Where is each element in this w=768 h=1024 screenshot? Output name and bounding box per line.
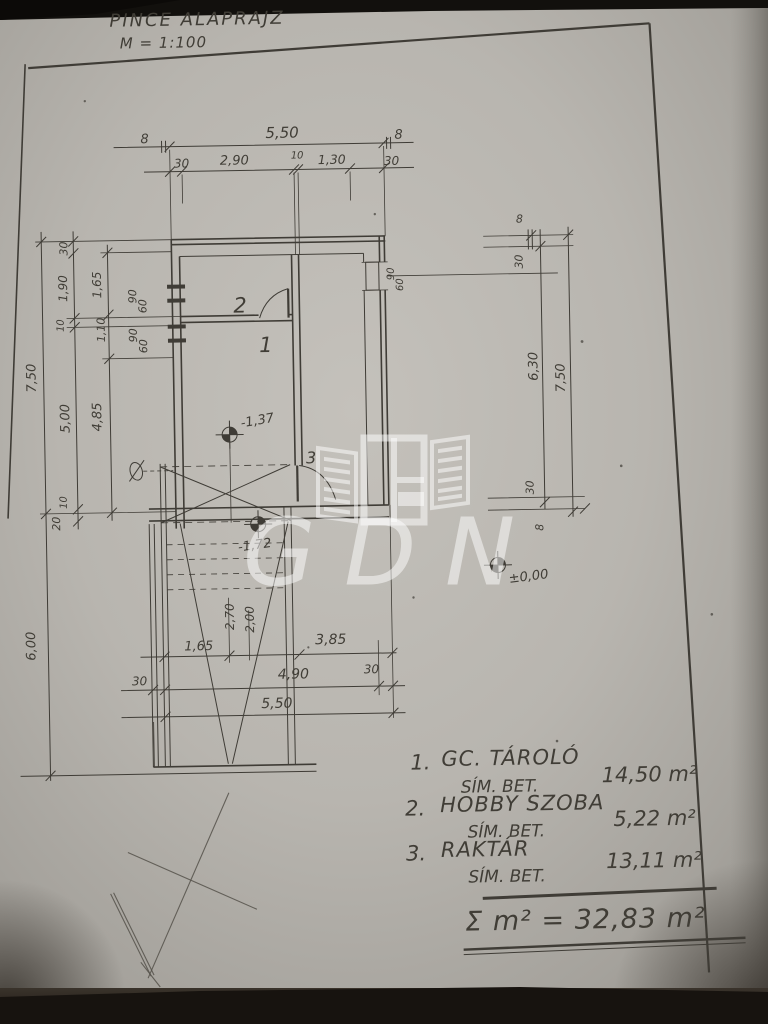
dim-30-left: 30 [57,241,70,255]
dim-30-right-top: 30 [513,254,526,268]
dim-130: 1,30 [318,152,346,167]
legend-name-1: GC. TÁROLÓ [441,744,580,771]
legend-total: Σ m² = 32,83 m² [465,902,706,937]
dim-270-bottom: 2,70 [223,603,237,630]
dim-750-left: 7,50 [24,364,40,393]
drawing-title: PINCE ALAPRAJZ [109,8,285,32]
dim-190-left: 1,90 [56,275,70,302]
photo-of-floor-plan: PINCE ALAPRAJZ M = 1:100 [0,0,768,1024]
dim-10a: 10 [291,150,304,161]
legend-area-2: 5,22 m² [613,806,696,831]
dim-10b-left: 10 [59,496,70,509]
dim-20-left: 20 [50,517,63,531]
dim-win2-60: 60 [137,339,150,353]
room3-label: 3 [306,448,317,467]
dim-30b: 30 [384,154,400,168]
legend-name-3: RAKTÁR [441,836,530,863]
dim-200-bottom: 2,00 [243,606,257,633]
dim-30-right-bottom: 30 [523,480,536,494]
dim-30d: 30 [364,662,380,676]
dim-8-right: 8 [394,128,403,143]
room1-label: 1 [259,333,273,357]
dim-290: 2,90 [220,153,249,169]
dim-490: 4,90 [278,666,310,683]
dim-165-left: 1,65 [90,271,104,298]
dim-600-left: 6,00 [24,632,40,661]
legend-no-1: 1. [410,750,430,774]
dim-750-right: 7,50 [553,363,569,392]
legend-area-1: 14,50 m² [601,762,698,788]
dim-500-left: 5,00 [58,404,74,433]
dim-rwin-90: 90 [386,267,397,280]
dim-8-right-top: 8 [516,213,523,226]
dim-30a: 30 [174,156,190,170]
legend-no-3: 3. [406,841,426,865]
door-leaf-room3 [297,466,298,502]
dim-8-left: 8 [140,132,149,147]
dim-630-right: 6,30 [526,352,542,381]
door-leaf-room2 [288,289,289,318]
dim-550-bottom: 5,50 [261,696,293,713]
watermark-text: GDN [244,499,545,606]
legend-area-3: 13,11 m² [606,847,703,873]
floor-plan-drawing: PINCE ALAPRAJZ M = 1:100 [0,0,768,1024]
legend-no-2: 2. [405,796,425,820]
dim-30c: 30 [132,674,148,688]
room2-label: 2 [233,293,247,317]
dim-10-left: 10 [56,319,67,332]
drawing-scale: M = 1:100 [120,33,208,53]
dim-550-top: 5,50 [265,123,299,142]
dim-110-left: 1,10 [95,318,108,343]
dim-385-bottom: 3,85 [315,632,347,649]
dim-485-left: 4,85 [90,402,106,431]
legend-finish-3: SÍM. BET. [468,864,546,887]
dim-rwin-60: 60 [395,278,406,291]
dim-165-bottom: 1,65 [184,639,213,655]
legend-name-2: HOBBY SZOBA [440,790,605,817]
dim-win1-60: 60 [136,299,149,313]
